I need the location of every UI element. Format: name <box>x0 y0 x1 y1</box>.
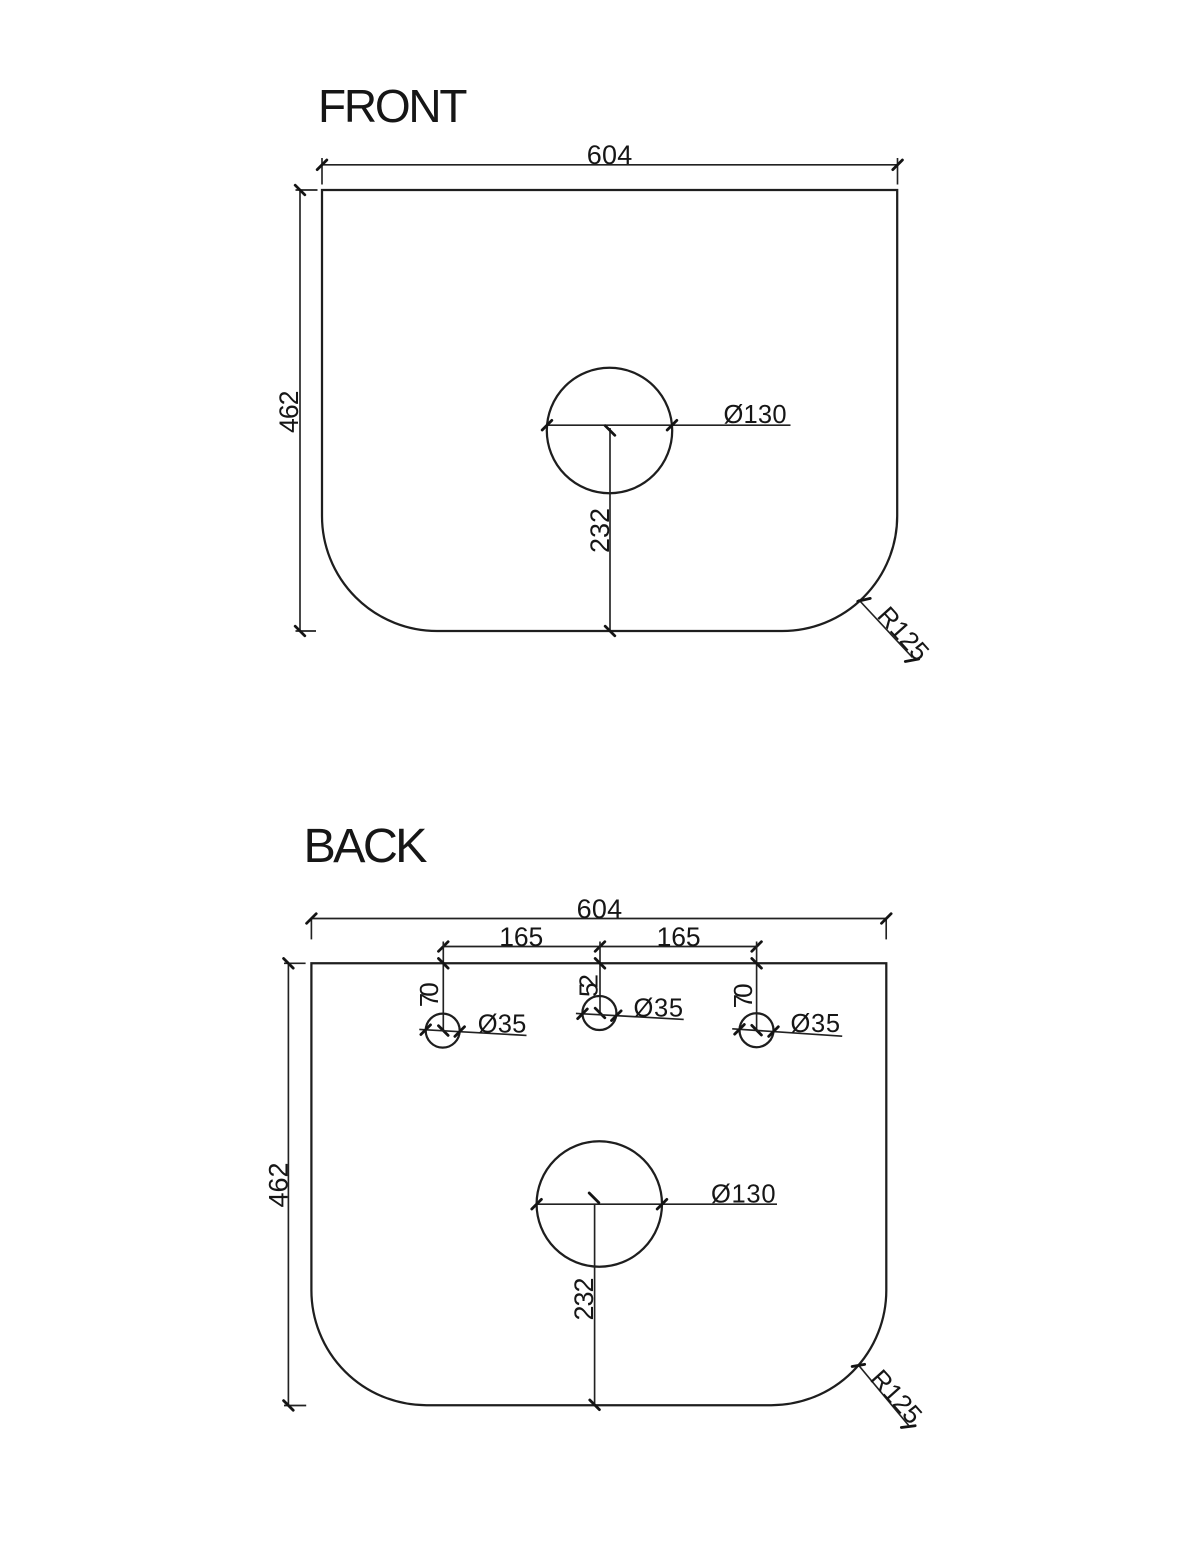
svg-text:Ø130: Ø130 <box>711 1181 776 1209</box>
svg-text:165: 165 <box>657 922 701 952</box>
svg-text:Ø35: Ø35 <box>634 995 684 1023</box>
svg-text:232: 232 <box>585 508 615 553</box>
svg-text:52: 52 <box>574 974 604 997</box>
svg-text:FRONT: FRONT <box>318 80 468 132</box>
svg-text:165: 165 <box>499 922 543 952</box>
svg-text:Ø130: Ø130 <box>724 401 787 429</box>
svg-text:Ø35: Ø35 <box>478 1010 527 1038</box>
svg-text:Ø35: Ø35 <box>791 1010 841 1038</box>
svg-text:604: 604 <box>587 140 633 170</box>
svg-text:462: 462 <box>274 391 304 434</box>
svg-text:70: 70 <box>414 982 444 1007</box>
svg-text:462: 462 <box>264 1162 294 1207</box>
svg-text:BACK: BACK <box>304 819 428 873</box>
svg-text:70: 70 <box>728 983 758 1008</box>
svg-text:604: 604 <box>577 894 623 924</box>
svg-text:232: 232 <box>569 1278 599 1321</box>
